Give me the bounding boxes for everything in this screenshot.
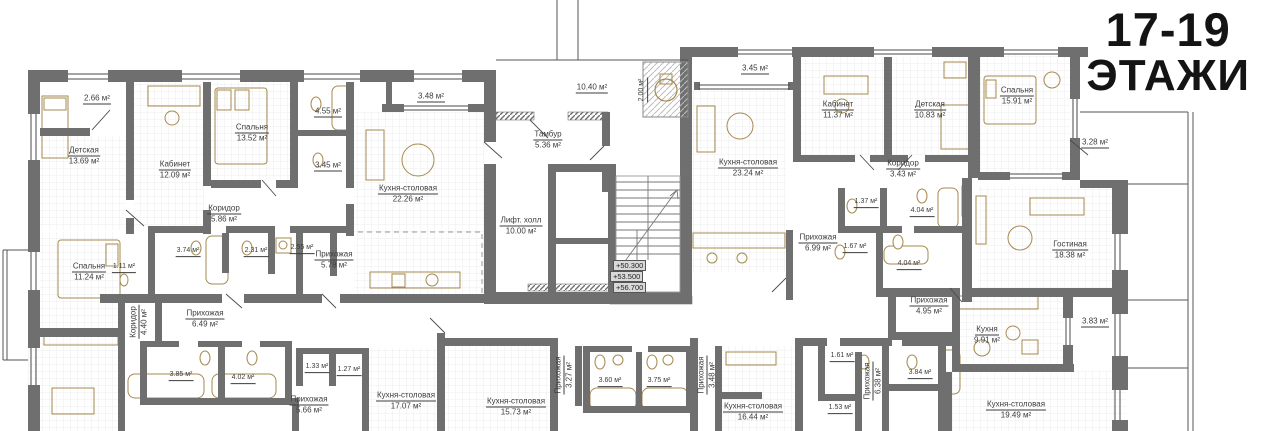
plan-title: 17-19 ЭТАЖИ — [1086, 6, 1250, 99]
elevation-mark: +53.500 — [610, 271, 643, 282]
elevation-mark: +50.300 — [613, 260, 646, 271]
elevation-mark: +56.700 — [613, 282, 646, 293]
floor-plan: 2.66 м²Детская13.69 м²Кабинет12.09 м²Спа… — [0, 0, 1280, 431]
plan-title-word: ЭТАЖИ — [1086, 54, 1250, 99]
plan-title-floors: 17-19 — [1086, 6, 1250, 54]
